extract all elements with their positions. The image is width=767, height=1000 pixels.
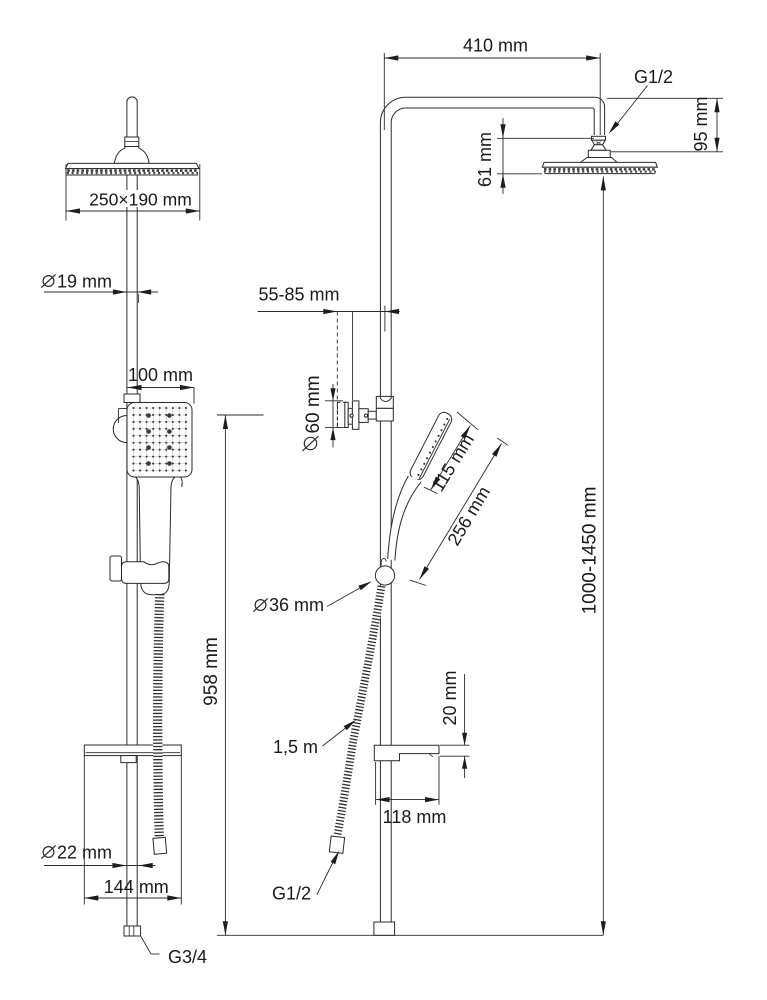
svg-text:144 mm: 144 mm <box>104 877 169 897</box>
svg-text:20 mm: 20 mm <box>440 670 460 725</box>
svg-text:G1/2: G1/2 <box>272 884 311 904</box>
svg-text:61 mm: 61 mm <box>475 132 495 187</box>
svg-text:118 mm: 118 mm <box>383 807 447 827</box>
svg-text:36 mm: 36 mm <box>269 595 324 615</box>
svg-text:G1/2: G1/2 <box>634 67 673 87</box>
svg-text:1000-1450 mm: 1000-1450 mm <box>580 487 601 615</box>
svg-text:100 mm: 100 mm <box>128 365 193 385</box>
svg-text:410 mm: 410 mm <box>463 36 528 56</box>
svg-text:95 mm: 95 mm <box>691 96 711 151</box>
svg-text:55-85 mm: 55-85 mm <box>258 285 339 305</box>
svg-text:19 mm: 19 mm <box>57 272 112 292</box>
svg-text:G3/4: G3/4 <box>168 947 207 967</box>
svg-text:250×190 mm: 250×190 mm <box>89 190 192 210</box>
svg-text:1,5 m: 1,5 m <box>273 737 318 757</box>
svg-text:22 mm: 22 mm <box>57 843 112 863</box>
svg-text:60 mm: 60 mm <box>303 375 324 433</box>
svg-text:958 mm: 958 mm <box>201 637 222 706</box>
